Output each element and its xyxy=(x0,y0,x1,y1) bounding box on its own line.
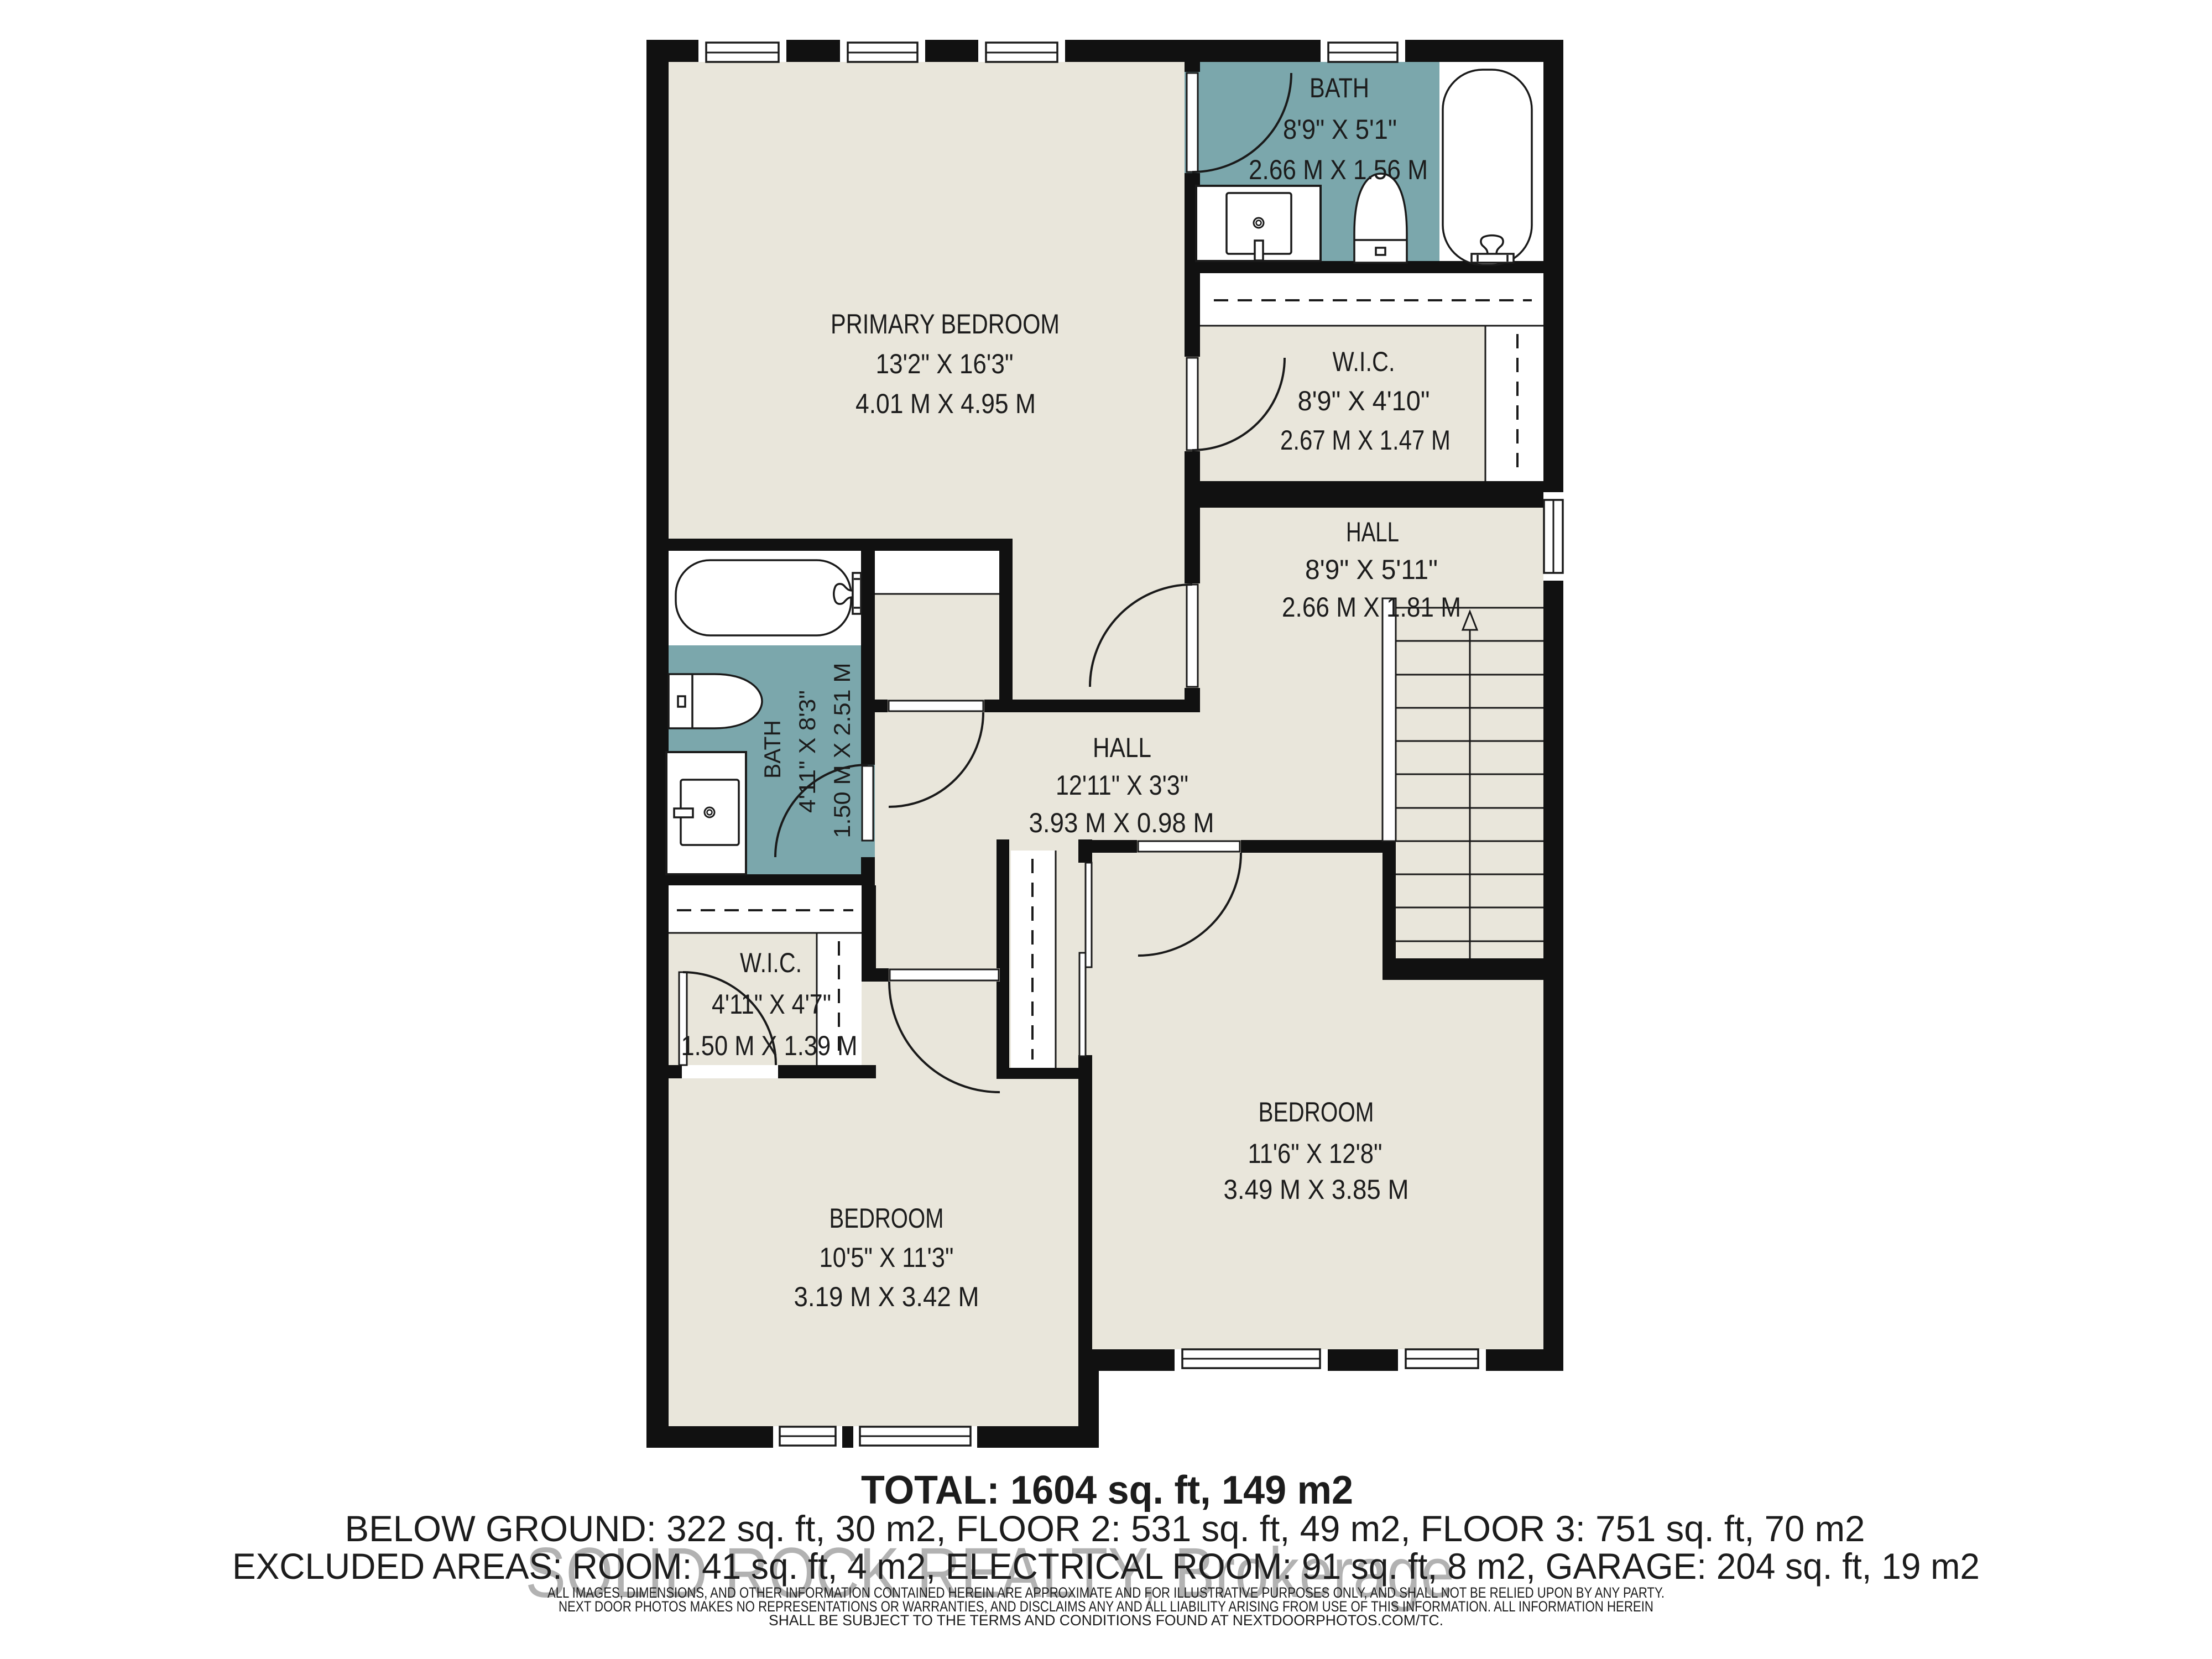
svg-text:8'9" X 4'10": 8'9" X 4'10" xyxy=(1298,385,1430,416)
svg-text:4.01 M X 4.95 M: 4.01 M X 4.95 M xyxy=(855,388,1036,419)
svg-text:PRIMARY BEDROOM: PRIMARY BEDROOM xyxy=(831,309,1060,340)
svg-text:3.93 M X 0.98 M: 3.93 M X 0.98 M xyxy=(1029,807,1214,838)
svg-text:BATH: BATH xyxy=(1310,72,1369,103)
svg-text:13'2" X 16'3": 13'2" X 16'3" xyxy=(876,348,1014,379)
svg-text:4'11" X 8'3": 4'11" X 8'3" xyxy=(794,690,820,813)
svg-text:8'9" X 5'11": 8'9" X 5'11" xyxy=(1305,554,1438,585)
svg-text:2.66 M X 1.81 M: 2.66 M X 1.81 M xyxy=(1282,592,1461,623)
svg-text:SOLID ROCK REALTY, Brokerage: SOLID ROCK REALTY, Brokerage xyxy=(525,1533,1454,1613)
svg-text:3.49 M X 3.85 M: 3.49 M X 3.85 M xyxy=(1224,1174,1409,1205)
svg-text:2.67 M X 1.47 M: 2.67 M X 1.47 M xyxy=(1280,425,1451,456)
svg-text:1.50 M X 1.39 M: 1.50 M X 1.39 M xyxy=(681,1030,858,1061)
svg-text:W.I.C.: W.I.C. xyxy=(1333,346,1395,377)
svg-text:2.66 M X 1.56 M: 2.66 M X 1.56 M xyxy=(1249,154,1428,185)
svg-text:8'9" X 5'1": 8'9" X 5'1" xyxy=(1283,114,1397,145)
svg-text:10'5" X 11'3": 10'5" X 11'3" xyxy=(820,1242,954,1273)
svg-text:4'11" X 4'7": 4'11" X 4'7" xyxy=(712,989,831,1020)
svg-text:BEDROOM: BEDROOM xyxy=(830,1203,944,1234)
svg-text:3.19 M X 3.42 M: 3.19 M X 3.42 M xyxy=(794,1281,979,1312)
svg-text:12'11" X 3'3": 12'11" X 3'3" xyxy=(1056,770,1188,801)
svg-text:W.I.C.: W.I.C. xyxy=(740,947,802,978)
svg-text:HALL: HALL xyxy=(1346,517,1399,547)
svg-text:11'6" X 12'8": 11'6" X 12'8" xyxy=(1248,1138,1383,1169)
svg-text:BATH: BATH xyxy=(759,720,785,779)
svg-text:HALL: HALL xyxy=(1093,732,1151,763)
svg-text:TOTAL: 1604 sq. ft, 149 m2: TOTAL: 1604 sq. ft, 149 m2 xyxy=(861,1468,1353,1512)
svg-text:1.50 M X 2.51 M: 1.50 M X 2.51 M xyxy=(829,663,855,838)
svg-text:SHALL BE SUBJECT TO THE TERMS: SHALL BE SUBJECT TO THE TERMS AND CONDIT… xyxy=(769,1612,1443,1629)
svg-text:BEDROOM: BEDROOM xyxy=(1259,1097,1374,1128)
